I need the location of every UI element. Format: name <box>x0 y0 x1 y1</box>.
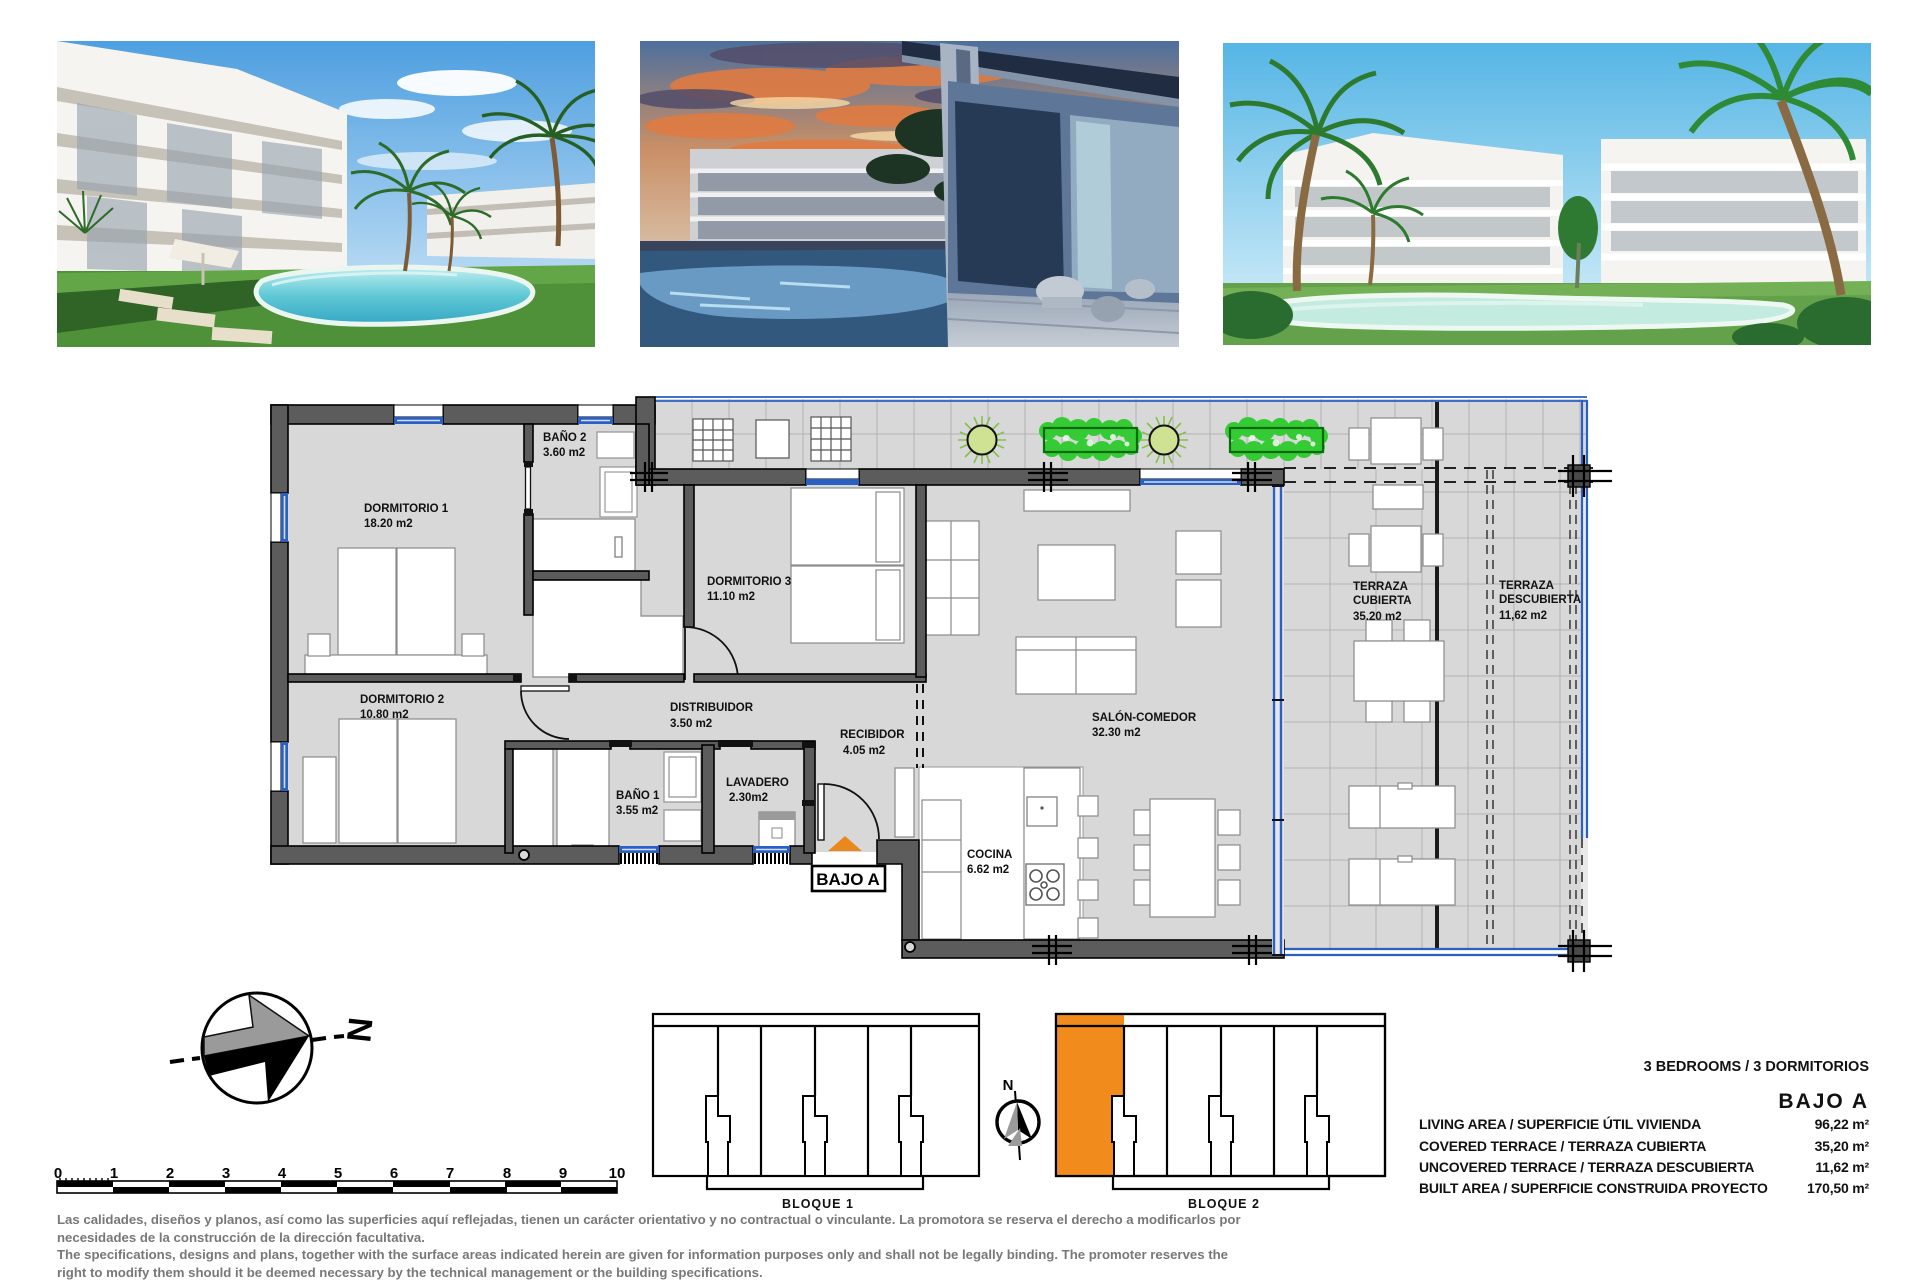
svg-text:TERRAZA: TERRAZA <box>1499 580 1554 592</box>
svg-text:4: 4 <box>278 1165 287 1182</box>
svg-text:BLOQUE 1: BLOQUE 1 <box>782 1197 854 1211</box>
svg-text:10.80 m2: 10.80 m2 <box>360 709 409 721</box>
svg-text:1: 1 <box>110 1165 118 1182</box>
svg-text:RECIBIDOR: RECIBIDOR <box>840 729 905 741</box>
svg-text:COVERED TERRACE / TERRAZA CUBI: COVERED TERRACE / TERRAZA CUBIERTA <box>1419 1138 1706 1154</box>
svg-text:3.50 m2: 3.50 m2 <box>670 718 712 730</box>
svg-text:6.62 m2: 6.62 m2 <box>967 864 1009 876</box>
svg-text:BAJO A: BAJO A <box>1778 1090 1869 1113</box>
svg-text:DISTRIBUIDOR: DISTRIBUIDOR <box>670 702 754 714</box>
svg-text:2: 2 <box>166 1165 174 1182</box>
svg-text:BUILT AREA / SUPERFICIE CONSTR: BUILT AREA / SUPERFICIE CONSTRUIDA PROYE… <box>1419 1180 1768 1196</box>
svg-text:18.20 m2: 18.20 m2 <box>364 518 413 530</box>
svg-text:11,62 m²: 11,62 m² <box>1815 1159 1869 1175</box>
svg-text:5: 5 <box>334 1165 342 1182</box>
svg-text:3: 3 <box>222 1165 230 1182</box>
svg-text:11.10 m2: 11.10 m2 <box>707 591 755 603</box>
svg-text:DESCUBIERTA: DESCUBIERTA <box>1499 594 1581 606</box>
svg-text:BAÑO 2: BAÑO 2 <box>543 431 586 444</box>
svg-text:DORMITORIO 3: DORMITORIO 3 <box>707 576 791 588</box>
svg-text:right to modify them should it: right to modify them should it be deemed… <box>57 1265 763 1280</box>
svg-text:LIVING AREA / SUPERFICIE ÚTIL: LIVING AREA / SUPERFICIE ÚTIL VIVIENDA <box>1419 1115 1701 1132</box>
svg-text:BLOQUE 2: BLOQUE 2 <box>1188 1197 1260 1211</box>
svg-text:SALÓN-COMEDOR: SALÓN-COMEDOR <box>1092 711 1197 724</box>
svg-text:2.30m2: 2.30m2 <box>729 792 768 804</box>
svg-text:N: N <box>1003 1077 1014 1094</box>
svg-text:6: 6 <box>390 1165 398 1182</box>
svg-text:32.30 m2: 32.30 m2 <box>1092 727 1141 739</box>
svg-text:4.05 m2: 4.05 m2 <box>843 745 885 757</box>
svg-text:N: N <box>339 1015 379 1043</box>
svg-text:necesidades de la construcción: necesidades de la construcción de la dir… <box>57 1230 425 1245</box>
svg-text:3.55 m2: 3.55 m2 <box>616 805 658 817</box>
svg-text:96,22 m²: 96,22 m² <box>1815 1116 1870 1132</box>
svg-text:7: 7 <box>446 1165 454 1182</box>
svg-text:3.60 m2: 3.60 m2 <box>543 447 585 459</box>
svg-text:TERRAZA: TERRAZA <box>1353 581 1408 593</box>
svg-text:35,20 m²: 35,20 m² <box>1815 1138 1870 1154</box>
svg-text:3 BEDROOMS / 3 DORMITORIOS: 3 BEDROOMS / 3 DORMITORIOS <box>1644 1059 1870 1075</box>
svg-text:10: 10 <box>609 1165 626 1182</box>
svg-text:8: 8 <box>503 1165 511 1182</box>
svg-text:Las calidades, diseños y plano: Las calidades, diseños y planos, así com… <box>57 1212 1241 1227</box>
svg-text:9: 9 <box>559 1165 567 1182</box>
svg-text:0: 0 <box>54 1165 62 1182</box>
svg-text:UNCOVERED TERRACE / TERRAZA DE: UNCOVERED TERRACE / TERRAZA DESCUBIERTA <box>1419 1159 1754 1175</box>
svg-text:BAJO A: BAJO A <box>816 870 880 889</box>
svg-text:DORMITORIO 2: DORMITORIO 2 <box>360 694 444 706</box>
svg-text:LAVADERO: LAVADERO <box>726 777 789 789</box>
svg-text:170,50 m²: 170,50 m² <box>1807 1180 1870 1196</box>
svg-text:The specifications, designs an: The specifications, designs and plans, t… <box>57 1247 1228 1262</box>
svg-text:CUBIERTA: CUBIERTA <box>1353 595 1412 607</box>
svg-text:BAÑO 1: BAÑO 1 <box>616 789 660 802</box>
svg-text:DORMITORIO 1: DORMITORIO 1 <box>364 503 449 515</box>
svg-text:11,62 m2: 11,62 m2 <box>1499 610 1547 622</box>
svg-text:COCINA: COCINA <box>967 849 1012 861</box>
svg-text:35.20 m2: 35.20 m2 <box>1353 611 1402 623</box>
